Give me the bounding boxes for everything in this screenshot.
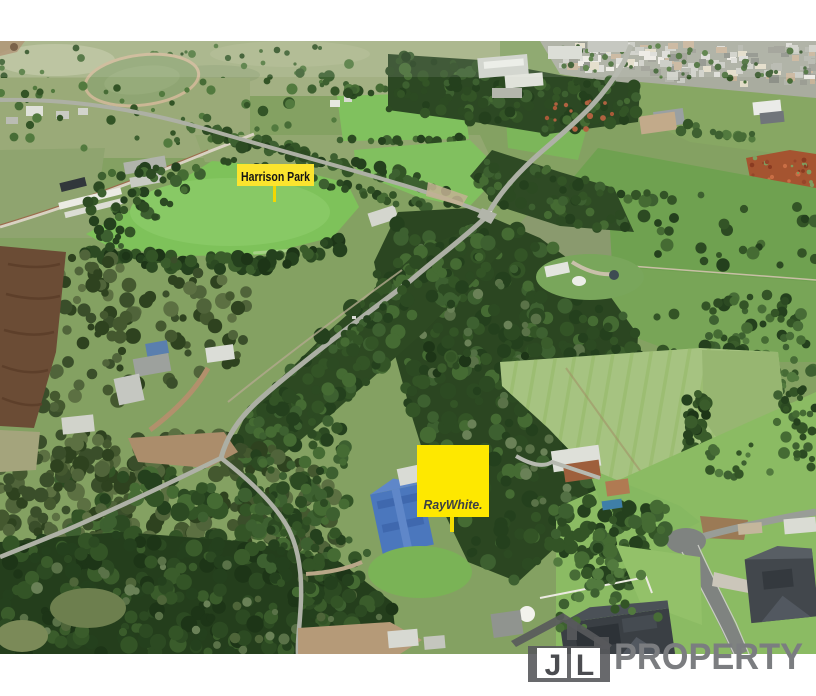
- svg-text:RayWhite.: RayWhite.: [424, 497, 483, 512]
- svg-text:PROPERTY: PROPERTY: [614, 635, 803, 677]
- svg-text:L: L: [576, 649, 594, 682]
- svg-text:J: J: [545, 649, 562, 682]
- svg-text:Harrison Park: Harrison Park: [241, 169, 311, 184]
